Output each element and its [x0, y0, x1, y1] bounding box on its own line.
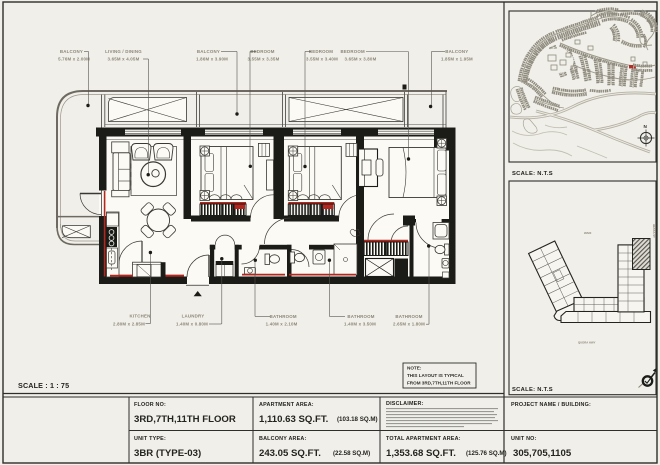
svg-text:BALCONY AREA:: BALCONY AREA: — [259, 436, 307, 442]
svg-text:1.85M x 1.95M: 1.85M x 1.95M — [441, 57, 473, 62]
svg-text:305,705,1105: 305,705,1105 — [513, 448, 572, 459]
svg-text:DISCLAIMER:: DISCLAIMER: — [386, 401, 424, 407]
svg-text:LIVING / DINING: LIVING / DINING — [105, 49, 142, 54]
svg-text:BATHROOM: BATHROOM — [395, 314, 422, 319]
svg-text:UNIT NO:: UNIT NO: — [511, 436, 537, 442]
svg-text:KITCHEN: KITCHEN — [130, 314, 151, 319]
svg-text:WADI: WADI — [584, 231, 592, 235]
svg-text:1.40M x 2.10M: 1.40M x 2.10M — [266, 322, 298, 327]
svg-text:3BR (TYPE-03): 3BR (TYPE-03) — [134, 448, 201, 459]
svg-text:SCALE : 1 : 75: SCALE : 1 : 75 — [18, 381, 69, 390]
svg-text:BEDROOM: BEDROOM — [309, 49, 333, 54]
svg-text:NOTE:: NOTE: — [407, 366, 422, 371]
svg-text:3RD,7TH,11TH FLOOR: 3RD,7TH,11TH FLOOR — [134, 414, 236, 425]
svg-text:BATHROOM: BATHROOM — [347, 314, 374, 319]
svg-text:APARTMENT AREA:: APARTMENT AREA: — [259, 402, 314, 408]
svg-text:BALCONY: BALCONY — [197, 49, 220, 54]
svg-text:BALCONY: BALCONY — [60, 49, 83, 54]
svg-text:(22.58 SQ.M): (22.58 SQ.M) — [333, 450, 370, 457]
svg-text:UNIT TYPE:: UNIT TYPE: — [134, 436, 166, 442]
svg-text:(125.76 SQ.M): (125.76 SQ.M) — [466, 450, 507, 457]
svg-text:1,353.68 SQ.FT.: 1,353.68 SQ.FT. — [386, 448, 456, 459]
svg-text:2.65M x 1.80M: 2.65M x 1.80M — [393, 322, 425, 327]
svg-text:2.80M x 2.85M: 2.80M x 2.85M — [113, 322, 145, 327]
svg-text:SCALE: N.T.S: SCALE: N.T.S — [512, 171, 553, 177]
svg-text:THIS LAYOUT IS TYPICAL: THIS LAYOUT IS TYPICAL — [407, 373, 464, 378]
svg-text:3.55M x 3.40M: 3.55M x 3.40M — [306, 57, 338, 62]
svg-text:243.05 SQ.FT.: 243.05 SQ.FT. — [259, 448, 321, 459]
svg-text:3.65M x 3.80M: 3.65M x 3.80M — [345, 57, 377, 62]
svg-text:FROM 3RD,7TH,11TH FLOOR: FROM 3RD,7TH,11TH FLOOR — [407, 381, 471, 386]
svg-text:LAUNDRY: LAUNDRY — [182, 314, 205, 319]
svg-text:(103.18 SQ.M): (103.18 SQ.M) — [337, 416, 378, 423]
svg-text:3.65M x 4.05M: 3.65M x 4.05M — [108, 57, 140, 62]
svg-text:1,110.63 SQ.FT.: 1,110.63 SQ.FT. — [259, 414, 328, 425]
svg-text:FLOOR NO:: FLOOR NO: — [134, 402, 166, 408]
svg-text:BALCONY: BALCONY — [445, 49, 468, 54]
svg-text:1.40M x 0.80M: 1.40M x 0.80M — [176, 322, 208, 327]
svg-text:PROJECT NAME / BUILDING:: PROJECT NAME / BUILDING: — [511, 402, 591, 408]
svg-text:1.86M x 3.90M: 1.86M x 3.90M — [196, 57, 228, 62]
svg-text:SCALE: N.T.S: SCALE: N.T.S — [512, 387, 553, 393]
svg-text:QUDRA HWY: QUDRA HWY — [578, 341, 596, 345]
svg-text:5.76M x 2.00M: 5.76M x 2.00M — [58, 57, 90, 62]
svg-text:HESSA ST: HESSA ST — [652, 224, 656, 238]
svg-text:1.40M x 3.50M: 1.40M x 3.50M — [344, 322, 376, 327]
svg-text:TOTAL APARTMENT AREA:: TOTAL APARTMENT AREA: — [386, 436, 461, 442]
svg-text:BEDROOM: BEDROOM — [341, 49, 365, 54]
svg-text:3.55M x 3.35M: 3.55M x 3.35M — [248, 57, 280, 62]
svg-text:BATHROOM: BATHROOM — [270, 314, 297, 319]
